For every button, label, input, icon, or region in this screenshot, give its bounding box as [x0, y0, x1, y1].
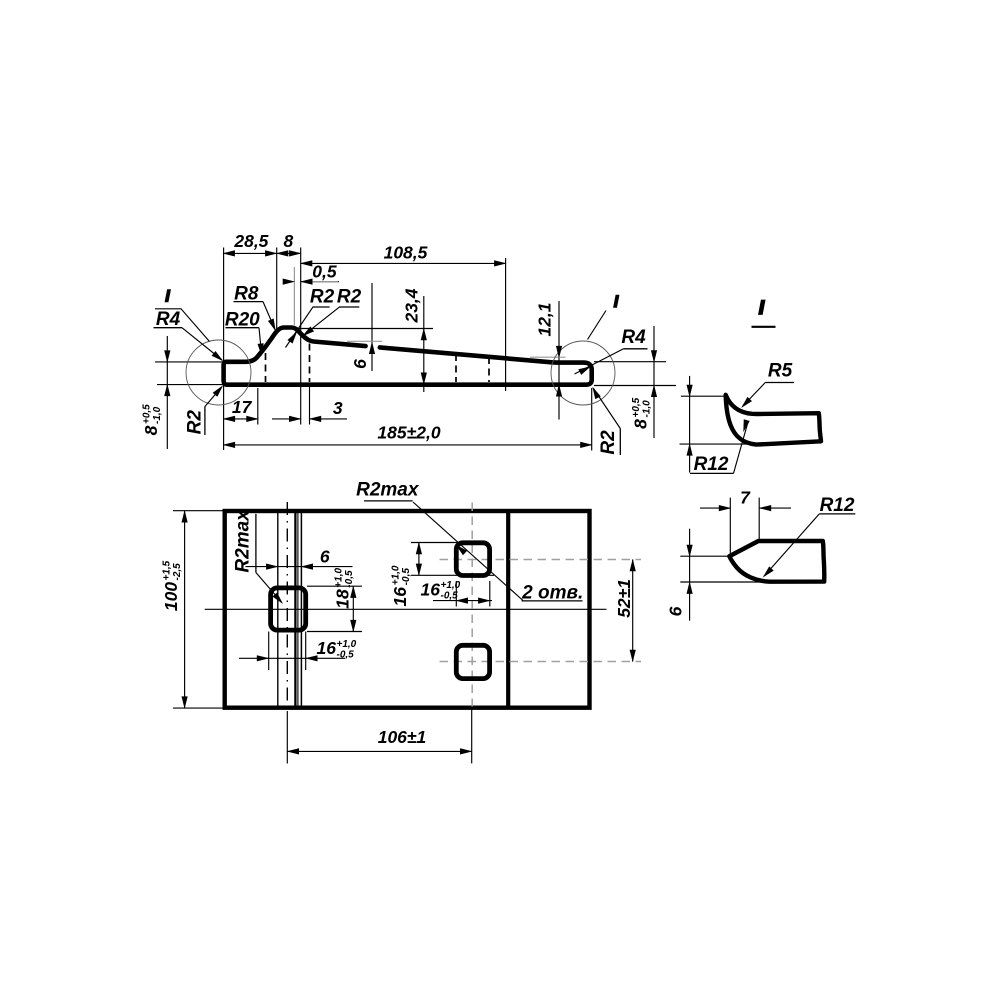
svg-text:+1,0: +1,0 [333, 568, 344, 588]
svg-text:6: 6 [320, 547, 330, 567]
svg-text:I: I [759, 297, 765, 319]
svg-text:16: 16 [390, 587, 410, 607]
svg-text:8: 8 [141, 425, 161, 435]
svg-text:+0,5: +0,5 [631, 397, 642, 417]
svg-text:-2,5: -2,5 [172, 563, 183, 581]
svg-text:R2: R2 [310, 286, 335, 307]
svg-text:17: 17 [232, 397, 253, 417]
svg-text:R12: R12 [694, 454, 729, 475]
svg-text:23,4: 23,4 [402, 288, 422, 323]
svg-text:R2: R2 [598, 430, 619, 455]
svg-text:6: 6 [666, 606, 686, 616]
svg-text:+1,0: +1,0 [441, 580, 461, 591]
svg-text:8: 8 [284, 231, 294, 251]
svg-text:R2: R2 [185, 410, 206, 435]
svg-text:-0,5: -0,5 [441, 591, 459, 602]
svg-text:6: 6 [350, 359, 370, 369]
svg-text:3: 3 [333, 398, 343, 418]
svg-text:100: 100 [161, 582, 181, 611]
svg-text:16: 16 [317, 638, 337, 658]
svg-text:8: 8 [631, 419, 651, 429]
svg-text:+0,5: +0,5 [142, 404, 153, 424]
svg-text:18: 18 [333, 589, 353, 609]
svg-text:R4: R4 [621, 327, 646, 348]
svg-text:7: 7 [740, 488, 751, 508]
svg-text:28,5: 28,5 [233, 231, 268, 251]
svg-text:R5: R5 [768, 361, 793, 382]
svg-text:+1,0: +1,0 [337, 639, 357, 650]
svg-text:-0,5: -0,5 [337, 649, 355, 660]
svg-text:R12: R12 [820, 495, 855, 516]
svg-text:R2max: R2max [233, 509, 254, 573]
svg-text:108,5: 108,5 [384, 243, 428, 263]
svg-text:106±1: 106±1 [378, 727, 427, 747]
svg-text:-1,0: -1,0 [642, 400, 653, 418]
svg-text:12,1: 12,1 [535, 302, 555, 336]
svg-text:-0,5: -0,5 [344, 570, 355, 588]
svg-text:-0,5: -0,5 [401, 568, 412, 586]
svg-text:0,5: 0,5 [312, 262, 337, 282]
svg-text:+1,5: +1,5 [162, 560, 173, 580]
svg-text:185±2,0: 185±2,0 [377, 423, 440, 443]
svg-text:+1,0: +1,0 [391, 565, 402, 585]
svg-text:-1,0: -1,0 [152, 406, 163, 424]
svg-text:R2: R2 [337, 286, 362, 307]
svg-text:16: 16 [421, 580, 441, 600]
svg-text:52±1: 52±1 [614, 579, 634, 618]
svg-text:R2max: R2max [356, 479, 420, 500]
